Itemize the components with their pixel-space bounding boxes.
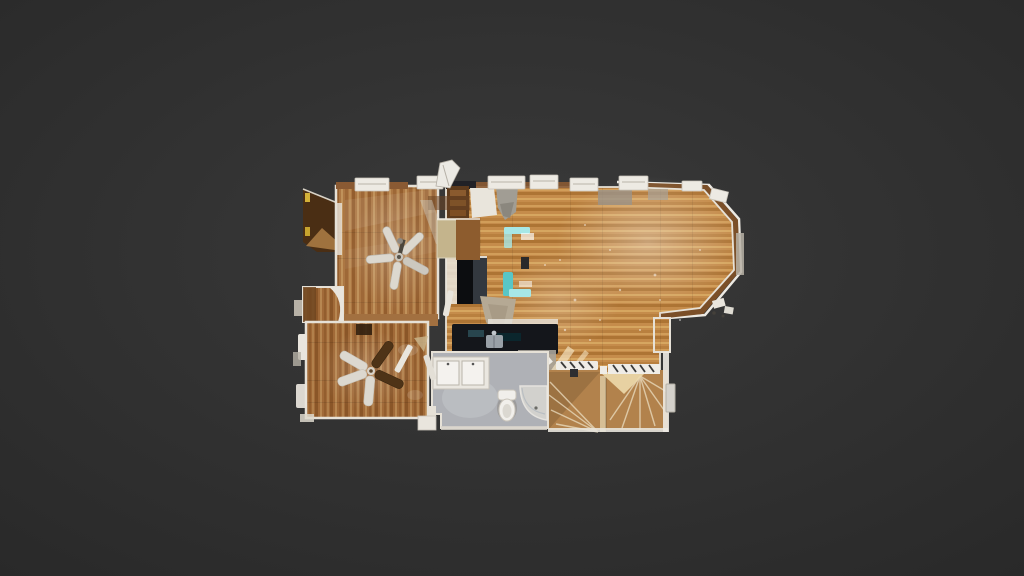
bookshelf-shelf [450,210,466,216]
bathroom-bottom-wall [441,426,547,430]
floorplan-scene-svg [0,0,1024,576]
fireplace-block [437,220,459,258]
room-bathroom [428,352,548,430]
white-box-artifact [530,175,558,189]
faucet-knob [472,363,475,366]
small-dark-fixture [521,257,529,269]
window-sill-gray [648,189,668,200]
closet-door-bump [296,384,307,408]
bay-right-sliver [736,233,744,275]
gloss-reflection [407,390,423,400]
stair-closet [654,318,670,352]
viewer-canvas[interactable] [0,0,1024,576]
closet-alcove [303,287,343,322]
left-gray-bump [293,352,301,366]
dark-dot-artifact [722,315,725,318]
shower-drain [534,406,537,409]
white-box-artifact [682,181,702,191]
bookshelf-shelf [450,190,466,196]
stairs-bottom-wall [548,428,668,432]
fan-mount-knob [397,238,403,244]
room-bedroom-lower-left [306,322,437,418]
railing-post [600,366,607,374]
stair-center-stringer [600,376,606,432]
fireplace-wood-top [456,218,480,260]
window-sill-gray [598,190,632,205]
railing-post-dark [570,369,578,377]
entry-yellow-speck [305,227,310,236]
island-white-rim [488,319,558,324]
toilet-seat [503,404,512,418]
fan-hub-center [397,255,401,259]
faucet [492,331,497,336]
dark-dot-artifact [712,311,716,315]
white-cabinet-top [470,188,497,218]
counter-reflection [468,330,484,337]
white-box-artifact [418,416,436,430]
alcove-dark-wood [303,287,316,322]
chair-frame-highlight [519,281,532,287]
wall-white-sliver [337,203,342,255]
faucet-knob [447,363,450,366]
chair-frame-highlight [521,233,534,240]
white-box-artifact [619,176,648,190]
doorway-dark-mat [356,324,372,335]
bottom-bump [300,414,314,422]
entry-yellow-speck [305,193,310,202]
fan-hub-center [369,369,373,373]
left-gray-bump [294,300,302,316]
side-door [666,384,675,412]
